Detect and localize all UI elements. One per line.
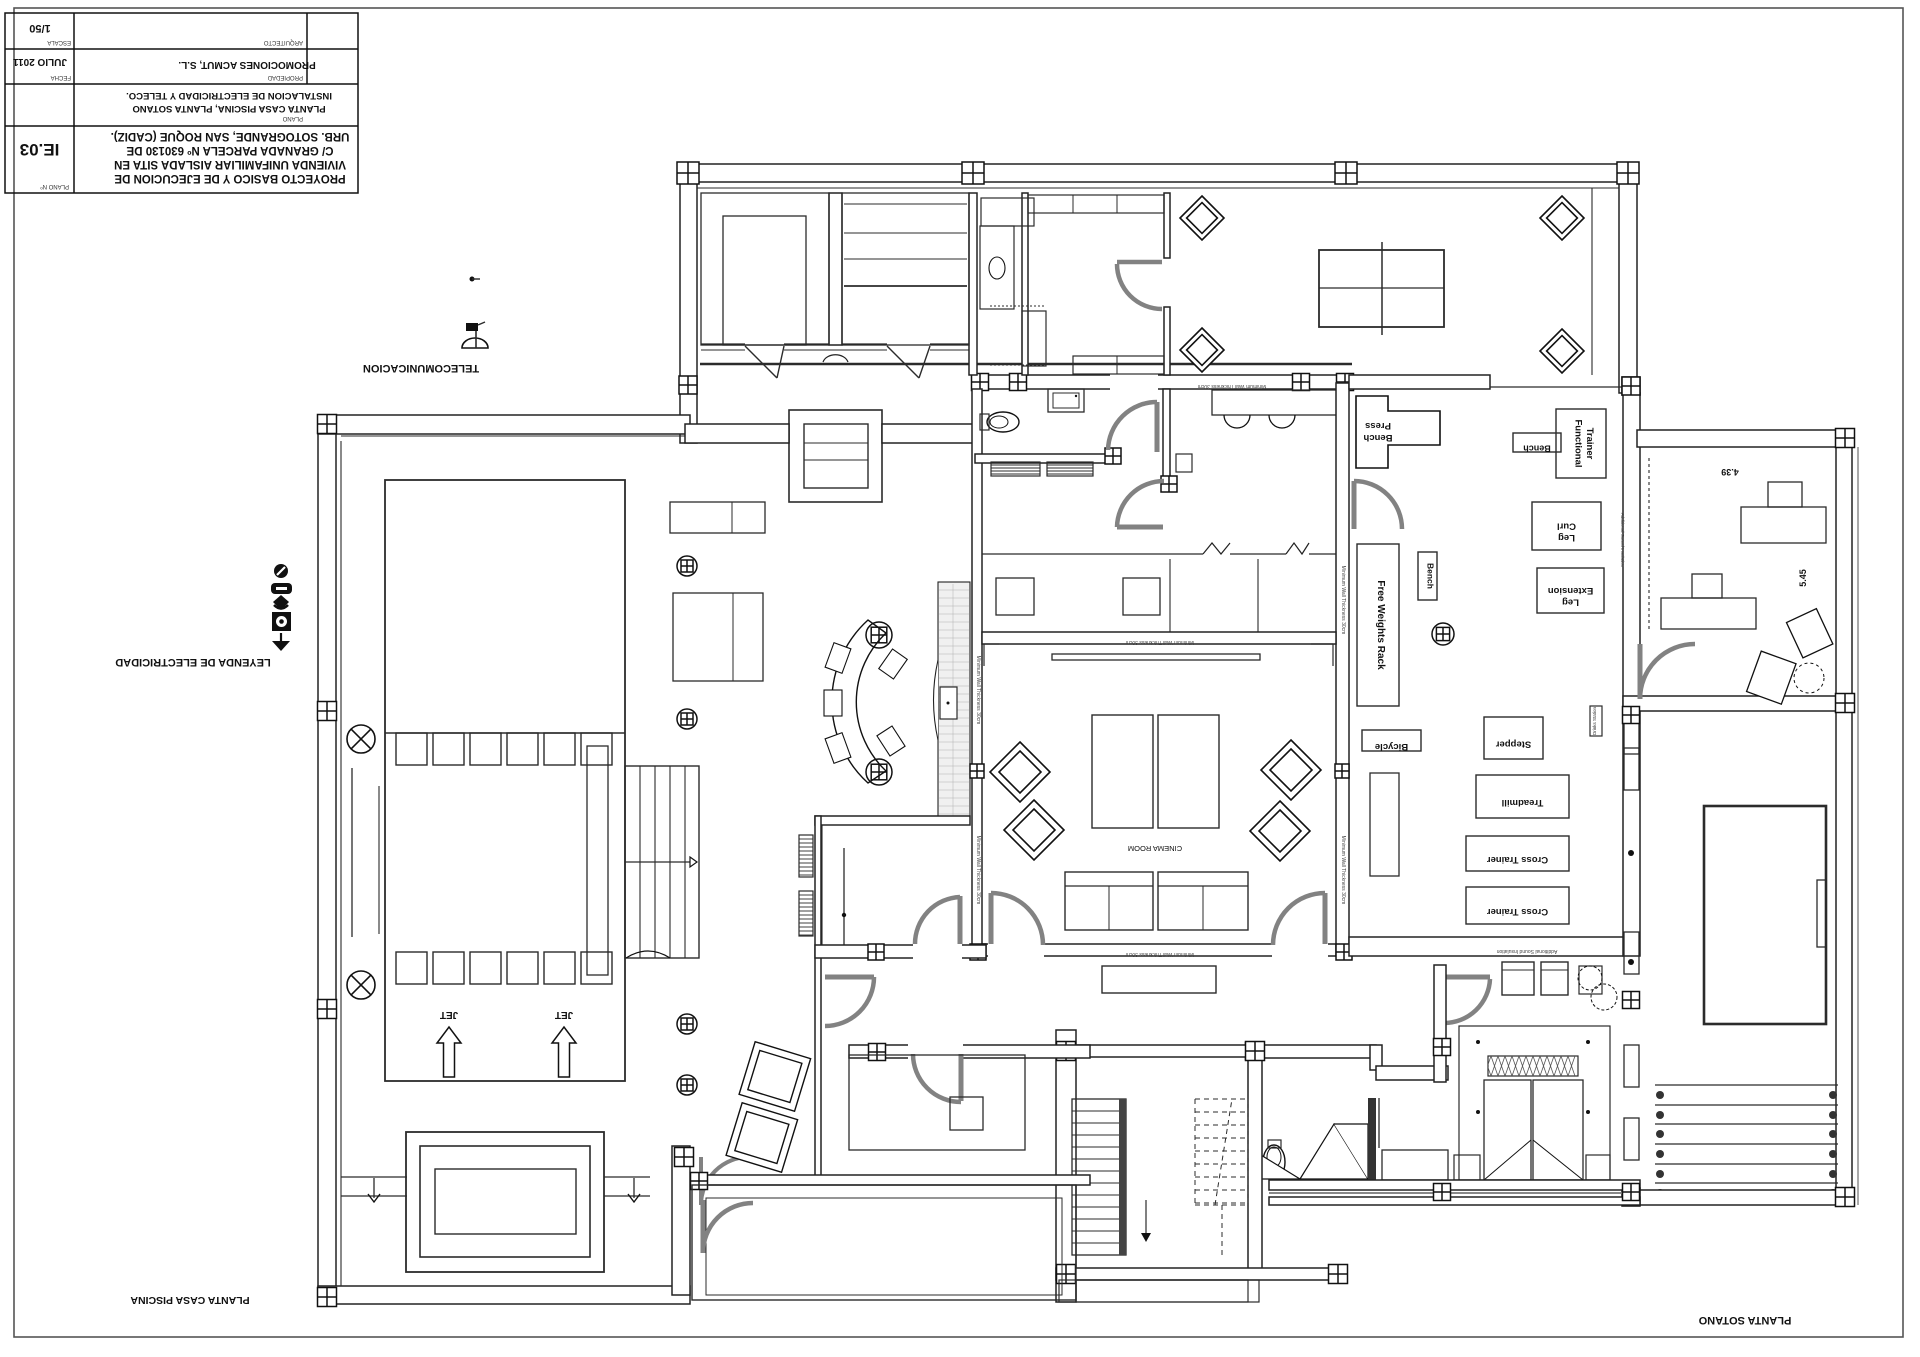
svg-text:PLANTA CASA PISCINA, PLANTA S: PLANTA CASA PISCINA, PLANTA SOTANO	[132, 103, 325, 114]
svg-text:Bicycle: Bicycle	[1375, 741, 1408, 752]
svg-text:Extension: Extension	[1548, 585, 1594, 596]
svg-text:Leg: Leg	[1558, 532, 1575, 543]
svg-text:Minimum Wall Thickness 30cm: Minimum Wall Thickness 30cm	[1340, 566, 1346, 635]
svg-text:Minimum Wall Thickness 30cm: Minimum Wall Thickness 30cm	[1198, 383, 1267, 389]
svg-text:FECHA: FECHA	[51, 74, 71, 80]
svg-text:JET: JET	[440, 1009, 458, 1020]
svg-text:IE.03: IE.03	[20, 140, 60, 159]
svg-text:Cross Trainer: Cross Trainer	[1487, 906, 1549, 917]
svg-text:Leg: Leg	[1562, 597, 1579, 608]
svg-text:Free Weights Rack: Free Weights Rack	[1375, 580, 1386, 670]
svg-text:INSTALACION DE ELECTRICIDAD Y: INSTALACION DE ELECTRICIDAD Y TELECO.	[126, 90, 332, 101]
svg-text:CINEMA ROOM: CINEMA ROOM	[1128, 844, 1182, 853]
svg-text:VIVIENDA UNIFAMILIAR AISLADA S: VIVIENDA UNIFAMILIAR AISLADA SITA EN	[114, 158, 346, 170]
svg-text:TELECOMUNICACION: TELECOMUNICACION	[363, 362, 479, 374]
svg-text:Cross Trainer: Cross Trainer	[1487, 854, 1549, 865]
svg-text:Minimum Wall Thickness 30cm: Minimum Wall Thickness 30cm	[1126, 951, 1195, 957]
svg-text:PROPIEDAD: PROPIEDAD	[267, 74, 303, 80]
svg-text:Minimum Wall Thickness 30cm: Minimum Wall Thickness 30cm	[1340, 836, 1346, 905]
svg-text:PROYECTO BASICO Y DE EJECUCION: PROYECTO BASICO Y DE EJECUCION DE	[114, 172, 346, 184]
svg-text:Functional: Functional	[1572, 419, 1583, 467]
svg-text:Bench: Bench	[1363, 432, 1392, 443]
svg-text:Drinks Station: Drinks Station	[1592, 706, 1597, 735]
svg-text:JET: JET	[555, 1009, 573, 1020]
svg-text:5.45: 5.45	[1798, 569, 1808, 587]
svg-text:Bench: Bench	[1523, 444, 1551, 454]
svg-text:Curl: Curl	[1557, 521, 1576, 532]
svg-text:PLANO Nº: PLANO Nº	[40, 183, 69, 190]
svg-text:Minimum Wall Thickness 30cm: Minimum Wall Thickness 30cm	[975, 836, 981, 905]
svg-text:PROMOCIONES ACMUT, S.L.: PROMOCIONES ACMUT, S.L.	[178, 59, 316, 70]
svg-text:Treadmill: Treadmill	[1502, 797, 1544, 808]
svg-text:Minimum Wall Thickness 30cm: Minimum Wall Thickness 30cm	[1126, 639, 1195, 645]
svg-text:LEYENDA DE ELECTRICIDAD: LEYENDA DE ELECTRICIDAD	[115, 656, 270, 668]
svg-text:JULIO 2011: JULIO 2011	[13, 56, 67, 67]
svg-text:ARQUITECTO: ARQUITECTO	[263, 39, 303, 45]
svg-text:Bench: Bench	[1426, 563, 1436, 589]
svg-text:4.39: 4.39	[1721, 467, 1739, 477]
svg-text:Minimum Wall Thickness 30cm: Minimum Wall Thickness 30cm	[975, 656, 981, 725]
svg-text:1/50: 1/50	[29, 22, 50, 34]
svg-text:Stepper: Stepper	[1496, 738, 1532, 749]
svg-text:Additional Sound Insulation: Additional Sound Insulation	[1496, 948, 1557, 954]
svg-text:PLANTA SOTANO: PLANTA SOTANO	[1698, 1314, 1791, 1326]
svg-text:Trainer: Trainer	[1584, 428, 1595, 460]
svg-text:Additional Sound Insulation: Additional Sound Insulation	[1620, 513, 1625, 568]
svg-text:ESCALA: ESCALA	[47, 39, 71, 45]
svg-text:PLANTA CASA PISCINA: PLANTA CASA PISCINA	[130, 1294, 250, 1306]
svg-text:URB. SOTOGRANDE, SAN ROQUE (CA: URB. SOTOGRANDE, SAN ROQUE (CADIZ).	[111, 130, 350, 142]
svg-text:C/ GRANADA PARCELA Nº 630130 D: C/ GRANADA PARCELA Nº 630130 DE	[126, 144, 333, 156]
svg-text:PLANO: PLANO	[282, 115, 303, 121]
svg-text:Press: Press	[1365, 420, 1391, 431]
